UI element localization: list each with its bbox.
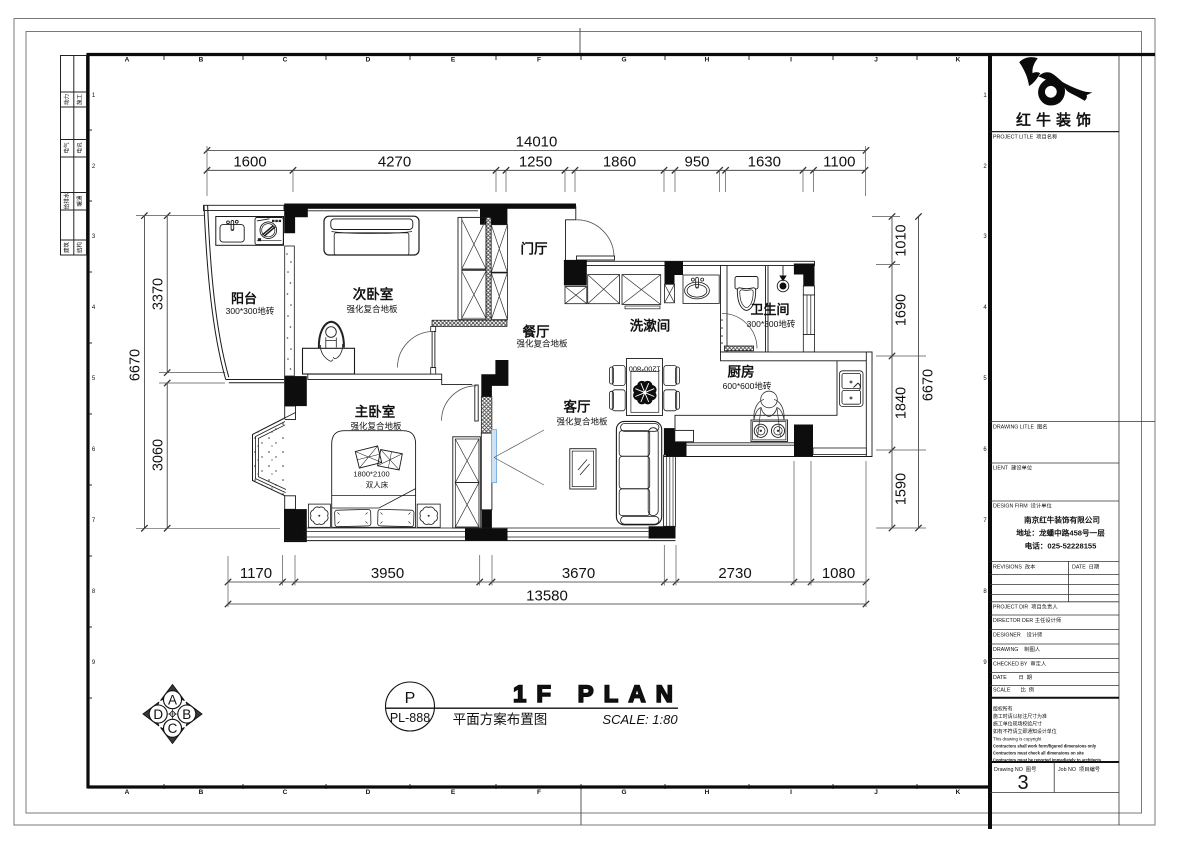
svg-text:E: E <box>451 789 456 796</box>
svg-text:13580: 13580 <box>526 588 568 605</box>
svg-text:D: D <box>153 707 163 722</box>
svg-text:版权所有: 版权所有 <box>993 706 1013 713</box>
svg-text:DATE 日 期: DATE 日 期 <box>993 674 1032 681</box>
svg-text:1800*2100: 1800*2100 <box>353 470 389 479</box>
svg-text:1250: 1250 <box>519 154 552 171</box>
svg-text:强化复合地板: 强化复合地板 <box>350 421 402 431</box>
svg-text:K: K <box>956 789 961 796</box>
svg-text:1690: 1690 <box>894 294 910 326</box>
svg-text:1630: 1630 <box>748 154 781 171</box>
svg-text:洗漱间: 洗漱间 <box>630 318 671 334</box>
svg-text:300*300地砖: 300*300地砖 <box>747 319 796 329</box>
svg-text:Job NO 项目编号: Job NO 项目编号 <box>1058 765 1100 773</box>
svg-text:双人床: 双人床 <box>366 480 389 490</box>
svg-text:K: K <box>956 57 961 64</box>
svg-text:平面方案布置图: 平面方案布置图 <box>453 711 548 727</box>
svg-text:餐厅: 餐厅 <box>522 324 551 340</box>
svg-text:C: C <box>283 789 288 796</box>
svg-text:D: D <box>366 789 371 796</box>
svg-text:Contractors shall work form/fi: Contractors shall work form/figured dime… <box>993 743 1097 748</box>
svg-text:1170: 1170 <box>240 565 272 582</box>
svg-text:SCALE 比 例: SCALE 比 例 <box>993 686 1034 694</box>
svg-text:3670: 3670 <box>562 565 595 582</box>
svg-text:A: A <box>125 789 130 796</box>
svg-text:1010: 1010 <box>894 224 910 256</box>
svg-text:J: J <box>874 789 878 796</box>
svg-text:1080: 1080 <box>822 565 855 582</box>
svg-text:H: H <box>705 57 710 64</box>
svg-text:厨房: 厨房 <box>728 364 755 380</box>
svg-text:客厅: 客厅 <box>563 399 592 415</box>
svg-text:DRAWING 制图人: DRAWING 制图人 <box>993 645 1041 653</box>
svg-text:G: G <box>621 789 626 796</box>
svg-text:B: B <box>199 57 204 64</box>
svg-text:电气: 电气 <box>62 142 70 154</box>
svg-text:A: A <box>168 693 177 708</box>
svg-text:门厅: 门厅 <box>521 241 549 257</box>
svg-text:SCALE: 1:80: SCALE: 1:80 <box>602 712 678 727</box>
svg-text:LIENT 建设单位: LIENT 建设单位 <box>993 464 1033 472</box>
svg-text:This drawing is copyright: This drawing is copyright <box>993 736 1042 741</box>
svg-text:DATE 日期: DATE 日期 <box>1072 564 1099 571</box>
svg-text:1100: 1100 <box>823 154 855 171</box>
svg-text:1600: 1600 <box>233 154 266 171</box>
svg-text:1860: 1860 <box>603 154 636 171</box>
svg-text:14010: 14010 <box>516 134 558 151</box>
svg-text:300*300地砖: 300*300地砖 <box>226 306 275 316</box>
svg-text:阳台: 阳台 <box>231 291 257 306</box>
svg-text:强化复合地板: 强化复合地板 <box>556 417 608 427</box>
svg-text:DIRECTOR DER 主任设计师: DIRECTOR DER 主任设计师 <box>993 616 1062 624</box>
svg-text:主卧室: 主卧室 <box>355 404 396 420</box>
svg-text:强化复合地板: 强化复合地板 <box>516 339 568 349</box>
svg-text:6670: 6670 <box>128 349 144 381</box>
svg-text:PL-888: PL-888 <box>390 711 430 725</box>
svg-text:建筑: 建筑 <box>62 242 70 254</box>
svg-text:F: F <box>537 789 541 796</box>
svg-text:给排水: 给排水 <box>62 192 70 209</box>
svg-text:3950: 3950 <box>371 565 404 582</box>
svg-text:暖通: 暖通 <box>75 195 83 207</box>
svg-text:3: 3 <box>1017 772 1028 794</box>
svg-text:PROJECT LITLE 项目名称: PROJECT LITLE 项目名称 <box>993 132 1058 140</box>
svg-text:C: C <box>283 57 288 64</box>
svg-text:电讯: 电讯 <box>75 142 83 154</box>
svg-text:DESIGN FIRM 设计单位: DESIGN FIRM 设计单位 <box>993 502 1053 510</box>
svg-text:如有不符请立即通知设计单位: 如有不符请立即通知设计单位 <box>993 728 1057 735</box>
svg-text:地址：龙蟠中路458号一层: 地址：龙蟠中路458号一层 <box>1016 528 1105 538</box>
svg-text:Drawing NO 图号: Drawing NO 图号 <box>994 765 1036 773</box>
svg-text:3060: 3060 <box>151 439 167 471</box>
svg-text:DESIGNER 设计师: DESIGNER 设计师 <box>993 631 1043 639</box>
svg-text:A: A <box>125 57 130 64</box>
svg-text:E: E <box>451 57 456 64</box>
svg-text:CHECKED BY 审定人: CHECKED BY 审定人 <box>993 660 1047 668</box>
svg-text:1590: 1590 <box>894 473 910 505</box>
svg-text:DRAWING LITLE 图名: DRAWING LITLE 图名 <box>993 423 1048 431</box>
svg-text:4270: 4270 <box>378 154 411 171</box>
svg-text:结构: 结构 <box>75 242 83 254</box>
svg-text:动力: 动力 <box>62 94 70 105</box>
svg-text:3370: 3370 <box>151 278 167 310</box>
svg-text:1F PLAN: 1F PLAN <box>513 681 683 708</box>
svg-text:950: 950 <box>684 154 709 171</box>
svg-text:G: G <box>621 57 626 64</box>
svg-text:1200*800: 1200*800 <box>629 365 661 374</box>
svg-text:600*600地砖: 600*600地砖 <box>723 381 772 391</box>
svg-text:强化复合地板: 强化复合地板 <box>346 304 398 314</box>
svg-text:C: C <box>168 721 178 736</box>
svg-text:次卧室: 次卧室 <box>353 286 394 302</box>
svg-text:1840: 1840 <box>894 387 910 419</box>
svg-text:施工单位现场校验尺寸: 施工单位现场校验尺寸 <box>993 721 1042 728</box>
svg-text:I: I <box>790 789 792 796</box>
svg-text:REVISIONS 改本: REVISIONS 改本 <box>993 563 1036 571</box>
svg-text:PROJECT DIR 项目负责人: PROJECT DIR 项目负责人 <box>993 603 1058 611</box>
svg-text:Contractors must check all dim: Contractors must check all dimensions on… <box>993 751 1084 756</box>
svg-text:F: F <box>537 57 541 64</box>
svg-text:电话：025-52228155: 电话：025-52228155 <box>1025 541 1098 551</box>
svg-text:红牛装饰: 红牛装饰 <box>1016 111 1096 129</box>
svg-text:施工时请以标注尺寸为准: 施工时请以标注尺寸为准 <box>993 713 1047 720</box>
svg-text:卫生间: 卫生间 <box>750 302 789 317</box>
svg-text:D: D <box>366 57 371 64</box>
svg-text:2730: 2730 <box>718 565 751 582</box>
svg-text:I: I <box>790 57 792 64</box>
svg-text:B: B <box>199 789 204 796</box>
svg-text:Contractors must be reported i: Contractors must be reported immediately… <box>993 757 1102 762</box>
svg-text:H: H <box>705 789 710 796</box>
svg-text:B: B <box>182 707 191 722</box>
svg-text:J: J <box>874 57 878 64</box>
svg-text:南京红牛装饰有限公司: 南京红牛装饰有限公司 <box>1024 515 1100 525</box>
svg-text:P: P <box>405 690 416 707</box>
svg-text:6670: 6670 <box>921 369 937 401</box>
svg-text:施工: 施工 <box>75 94 83 106</box>
